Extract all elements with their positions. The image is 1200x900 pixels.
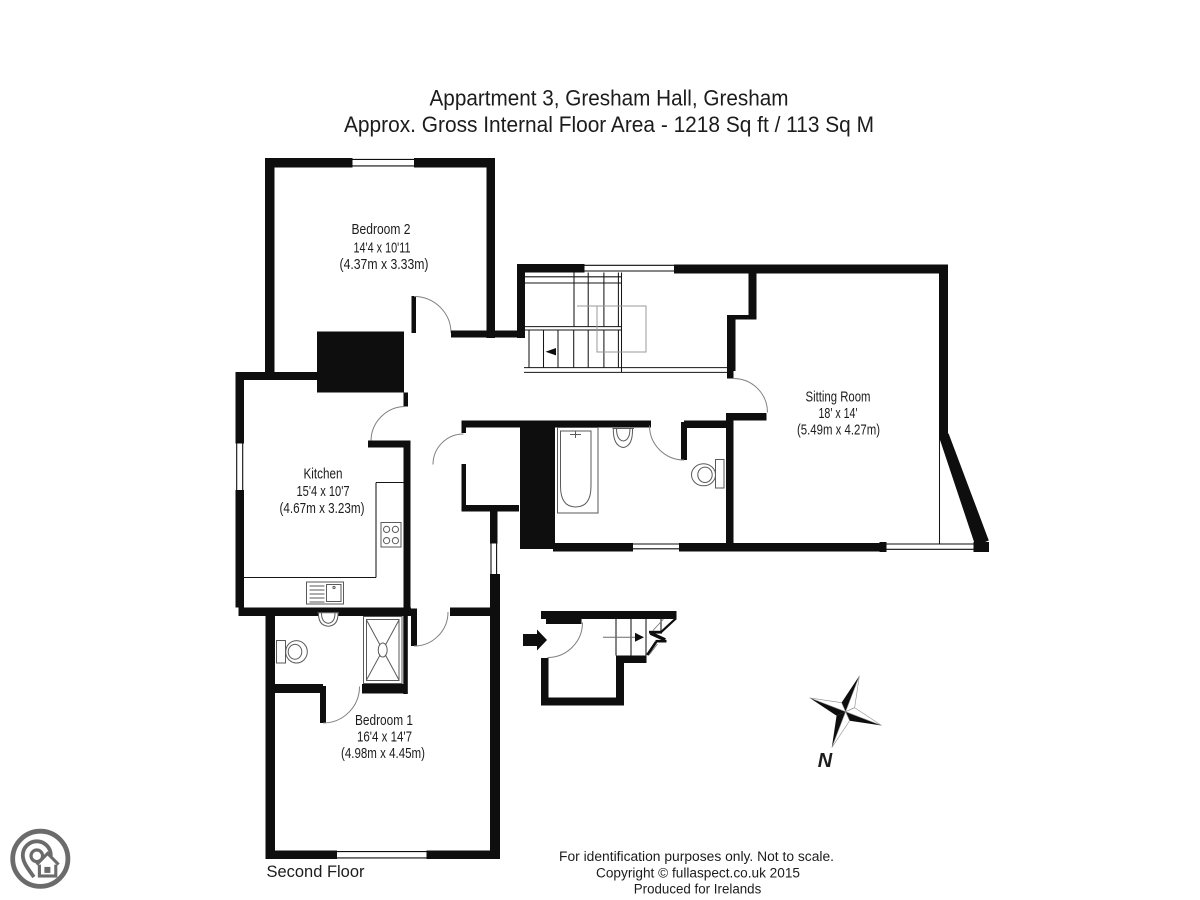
svg-text:Copyright © fullaspect.co.uk 2: Copyright © fullaspect.co.uk 2015 bbox=[596, 865, 800, 880]
svg-text:(4.37m x 3.33m): (4.37m x 3.33m) bbox=[340, 256, 429, 273]
svg-text:Produced for Irelands: Produced for Irelands bbox=[634, 882, 762, 897]
svg-text:Bedroom 2: Bedroom 2 bbox=[352, 221, 411, 238]
svg-text:For identification purposes on: For identification purposes only. Not to… bbox=[559, 849, 834, 864]
svg-text:16'4 x 14'7: 16'4 x 14'7 bbox=[357, 729, 412, 746]
svg-text:(4.67m x 3.23m): (4.67m x 3.23m) bbox=[280, 500, 365, 517]
svg-text:(4.98m x 4.45m): (4.98m x 4.45m) bbox=[341, 745, 425, 762]
svg-text:15'4 x 10'7: 15'4 x 10'7 bbox=[297, 483, 350, 500]
svg-text:Bedroom 1: Bedroom 1 bbox=[355, 712, 413, 729]
svg-text:18' x 14': 18' x 14' bbox=[819, 405, 858, 422]
svg-text:Sitting Room: Sitting Room bbox=[806, 389, 871, 406]
svg-text:Second Floor: Second Floor bbox=[267, 862, 365, 881]
svg-text:(5.49m x 4.27m): (5.49m x 4.27m) bbox=[797, 422, 880, 439]
svg-text:Kitchen: Kitchen bbox=[304, 466, 343, 483]
svg-text:Approx. Gross Internal Floor A: Approx. Gross Internal Floor Area - 1218… bbox=[344, 112, 874, 137]
svg-text:14'4 x 10'11: 14'4 x 10'11 bbox=[354, 240, 411, 257]
svg-text:Appartment 3, Gresham Hall, Gr: Appartment 3, Gresham Hall, Gresham bbox=[430, 86, 789, 111]
svg-text:N: N bbox=[818, 750, 833, 772]
